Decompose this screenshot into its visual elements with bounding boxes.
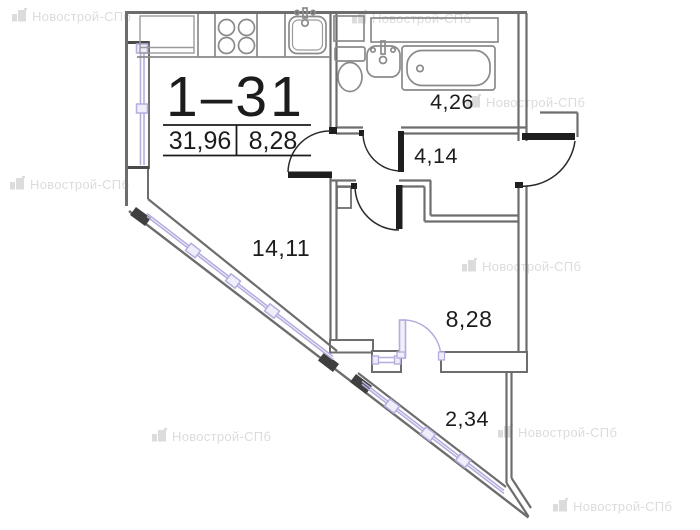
building-icon: [10, 176, 25, 190]
watermark: Новострой-СПб: [553, 498, 672, 514]
wall-hallway-bottom: [330, 181, 431, 187]
wall-hallway-top: [336, 128, 527, 134]
building-icon: [152, 428, 167, 442]
bathroom-label: 4,26: [430, 90, 474, 114]
wall-right-top: [519, 11, 527, 141]
floor-plan-page: Новострой-СПб Новострой-СПб Новострой-СП…: [0, 0, 700, 530]
watermark: Новострой-СПб: [12, 8, 131, 24]
watermark: Новострой-СПб: [462, 258, 581, 274]
watermark-text: Новострой-СПб: [518, 425, 617, 440]
window-left: [127, 42, 149, 168]
living-label: 14,11: [252, 235, 310, 261]
hallway-label: 4,14: [414, 144, 458, 168]
balcony-door: [397, 320, 445, 360]
toilet: [335, 47, 365, 92]
wall-bedroom-south: [441, 352, 527, 372]
building-icon: [462, 258, 477, 272]
watermark: Новострой-СПб: [152, 428, 271, 444]
window-balcony-diagonal: [362, 381, 504, 493]
watermark-text: Новострой-СПб: [32, 9, 131, 24]
watermark-text: Новострой-СПб: [573, 499, 672, 514]
wall-balcony-right: [507, 372, 532, 517]
area-living: 8,28: [249, 127, 298, 155]
title-block: 1–31 31,96 8,28: [163, 65, 311, 156]
watermark-text: Новострой-СПб: [172, 429, 271, 444]
kitchen-fixtures: [137, 8, 330, 57]
entrance-door: [515, 133, 575, 188]
watermark: Новострой-СПб: [498, 424, 617, 440]
floor-plan-svg: Новострой-СПб Новострой-СПб Новострой-СП…: [0, 0, 700, 530]
washbasin: [367, 41, 400, 77]
watermark-text: Новострой-СПб: [30, 177, 129, 192]
bathroom-fixtures: [334, 16, 498, 92]
watermark-text: Новострой-СПб: [482, 259, 581, 274]
wall-right-bottom: [519, 186, 527, 373]
watermark-text: Новострой-СПб: [486, 95, 585, 110]
cap-living-end: [321, 357, 336, 369]
building-icon: [12, 8, 27, 22]
wall-niche: [425, 181, 519, 222]
bedroom-label: 8,28: [446, 306, 493, 332]
wall-living-bedroom: [331, 174, 337, 342]
area-total: 31,96: [169, 127, 232, 155]
kitchen-cabinet: [140, 16, 194, 53]
watermarks: Новострой-СПб Новострой-СПб Новострой-СП…: [10, 8, 672, 514]
wall-diagonal-inner-living: [148, 199, 337, 351]
cap-living-start: [133, 211, 148, 222]
stove: [219, 20, 255, 54]
unit-title: 1–31: [166, 65, 305, 129]
bathtub: [402, 46, 495, 90]
bathroom-door: [359, 130, 404, 172]
balcony-label: 2,34: [445, 407, 489, 431]
kitchen-sink: [289, 8, 326, 54]
watermark: Новострой-СПб: [10, 176, 129, 192]
bedroom-door: [351, 183, 403, 230]
building-icon: [553, 498, 568, 512]
duct: [337, 187, 351, 208]
